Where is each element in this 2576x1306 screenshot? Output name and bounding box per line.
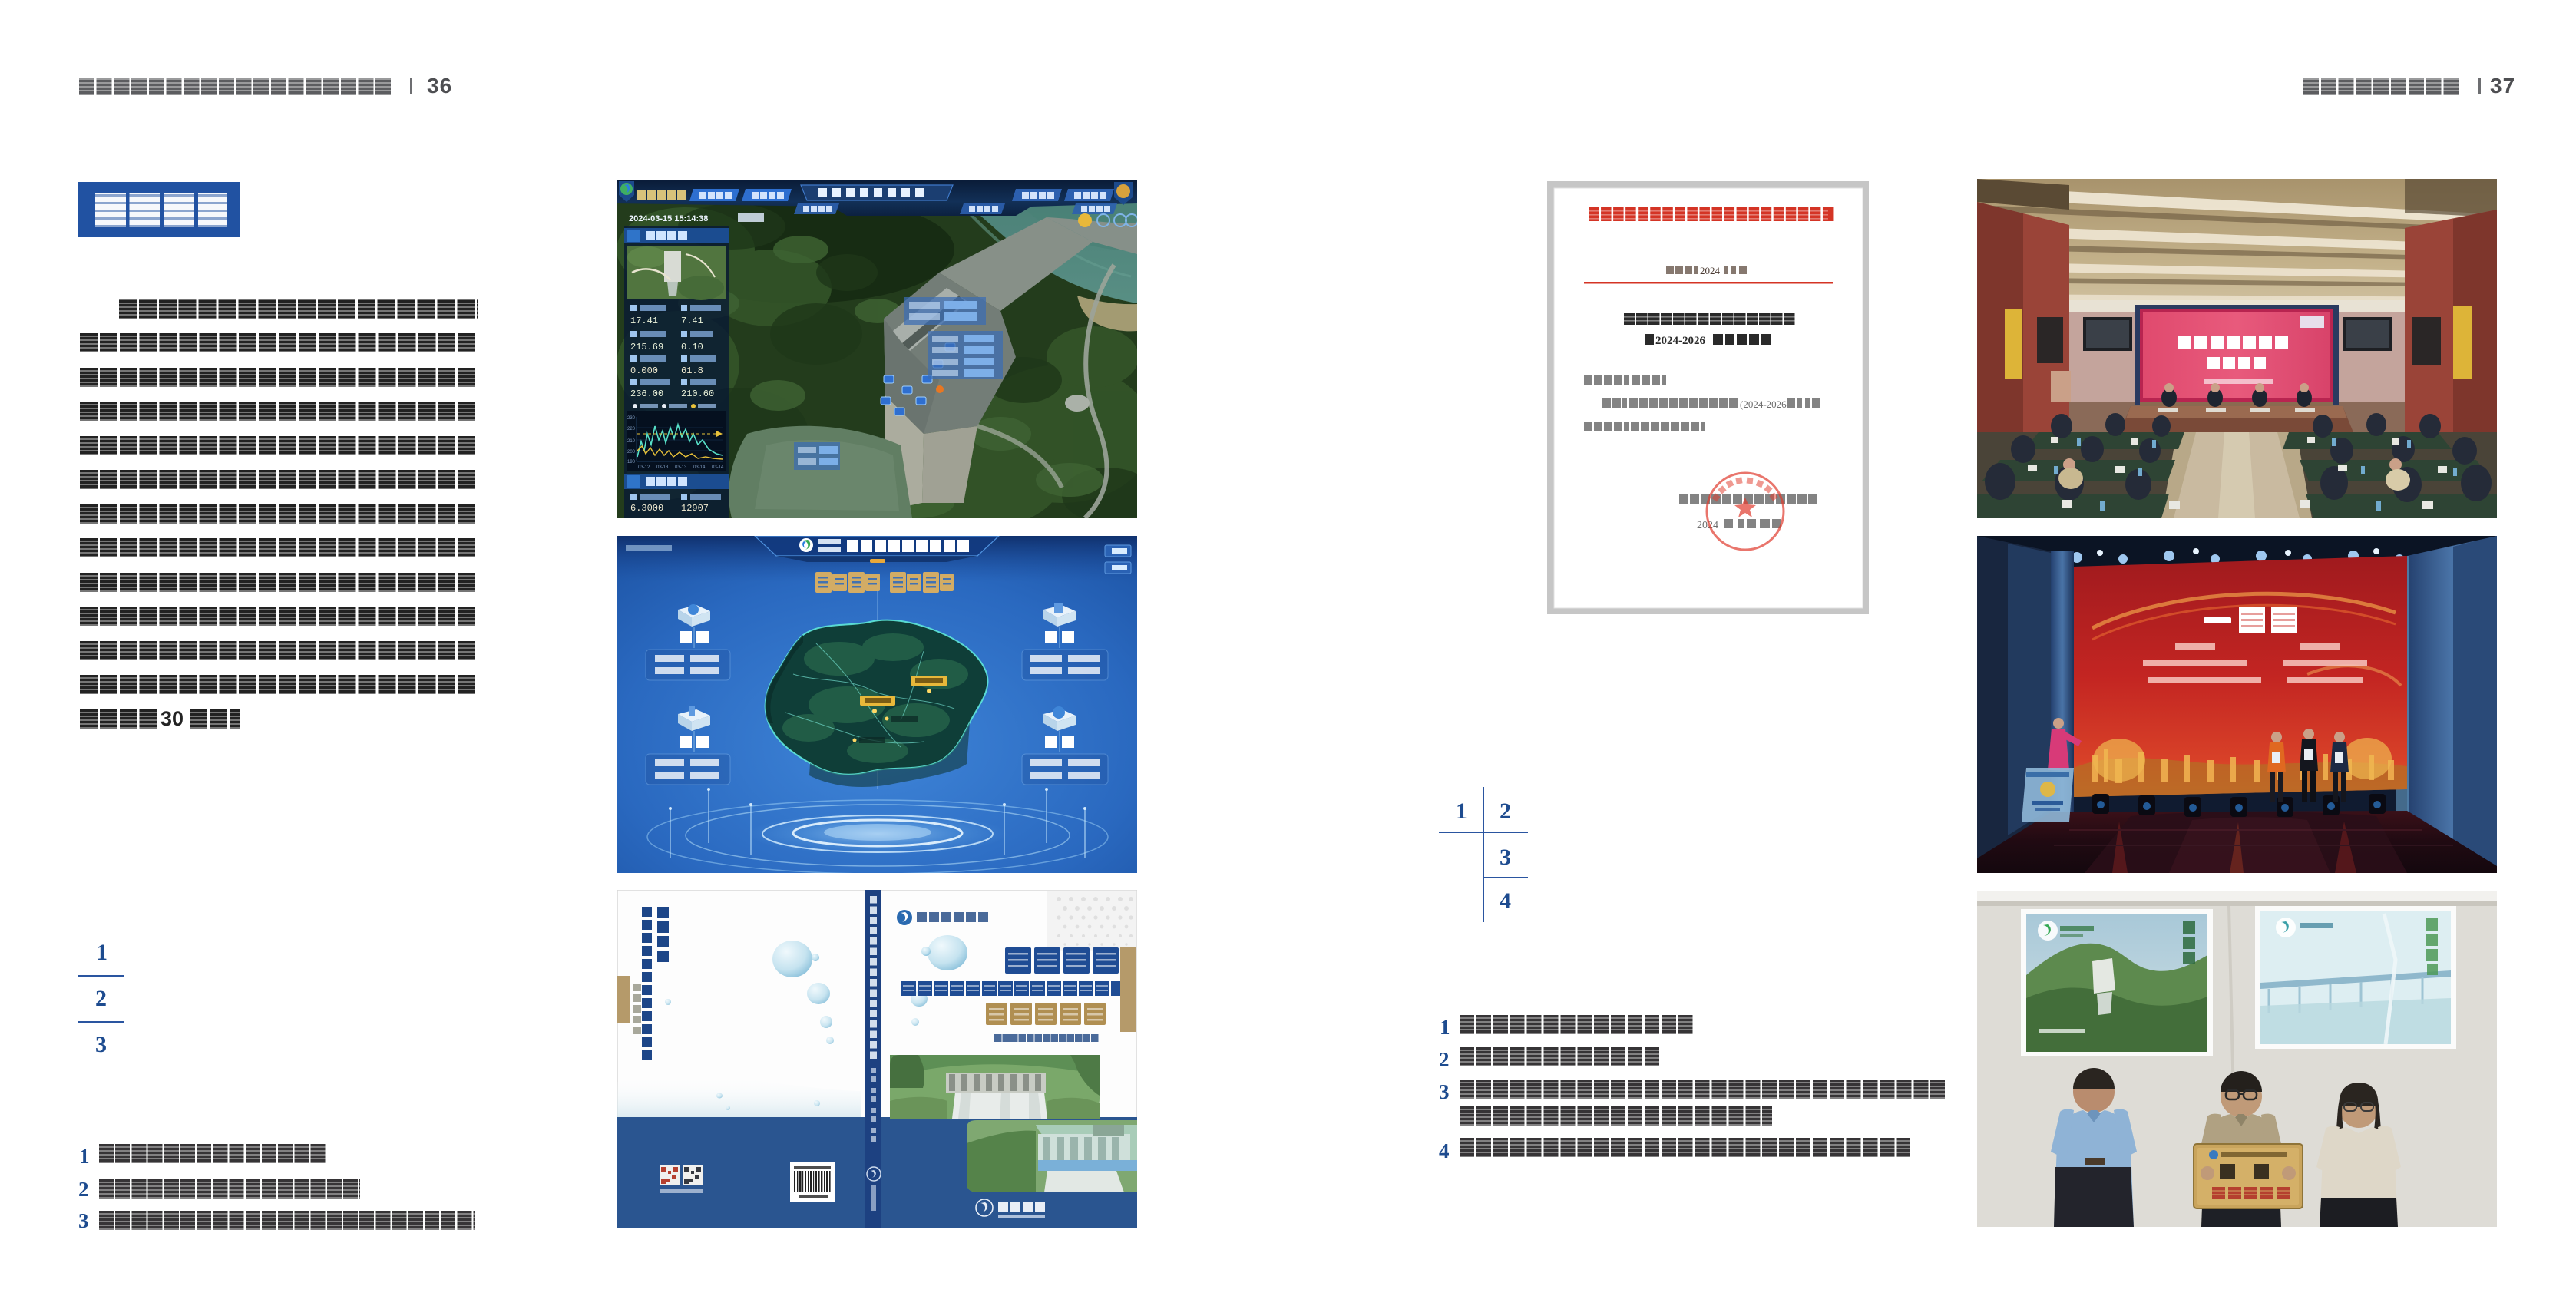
svg-text:230: 230 [627, 416, 636, 421]
svg-text:12907: 12907 [681, 503, 709, 514]
svg-text:0.000: 0.000 [630, 365, 658, 376]
svg-text:210: 210 [627, 439, 636, 444]
svg-text:(2024-2026: (2024-2026 [1740, 398, 1787, 410]
svg-text:190: 190 [627, 460, 636, 465]
svg-text:0.10: 0.10 [681, 342, 703, 352]
svg-text:03-14: 03-14 [693, 465, 706, 470]
svg-text:2024: 2024 [1700, 265, 1721, 276]
svg-text:210.60: 210.60 [681, 388, 714, 399]
svg-text:7.41: 7.41 [681, 316, 703, 326]
svg-text:61.8: 61.8 [681, 365, 703, 376]
svg-text:6.3000: 6.3000 [630, 503, 663, 514]
svg-text:17.41: 17.41 [630, 316, 658, 326]
svg-text:03-14: 03-14 [712, 465, 724, 470]
svg-text:200: 200 [627, 450, 636, 455]
svg-text:2024-03-15 15:14:38: 2024-03-15 15:14:38 [629, 214, 708, 223]
svg-text:2024-2026: 2024-2026 [1655, 335, 1705, 347]
svg-text:03-13: 03-13 [675, 465, 687, 470]
svg-text:03-13: 03-13 [656, 465, 669, 470]
svg-text:215.69: 215.69 [630, 342, 663, 352]
svg-text:03-12: 03-12 [638, 465, 650, 470]
svg-text:236.00: 236.00 [630, 388, 663, 399]
svg-text:220: 220 [627, 427, 636, 431]
